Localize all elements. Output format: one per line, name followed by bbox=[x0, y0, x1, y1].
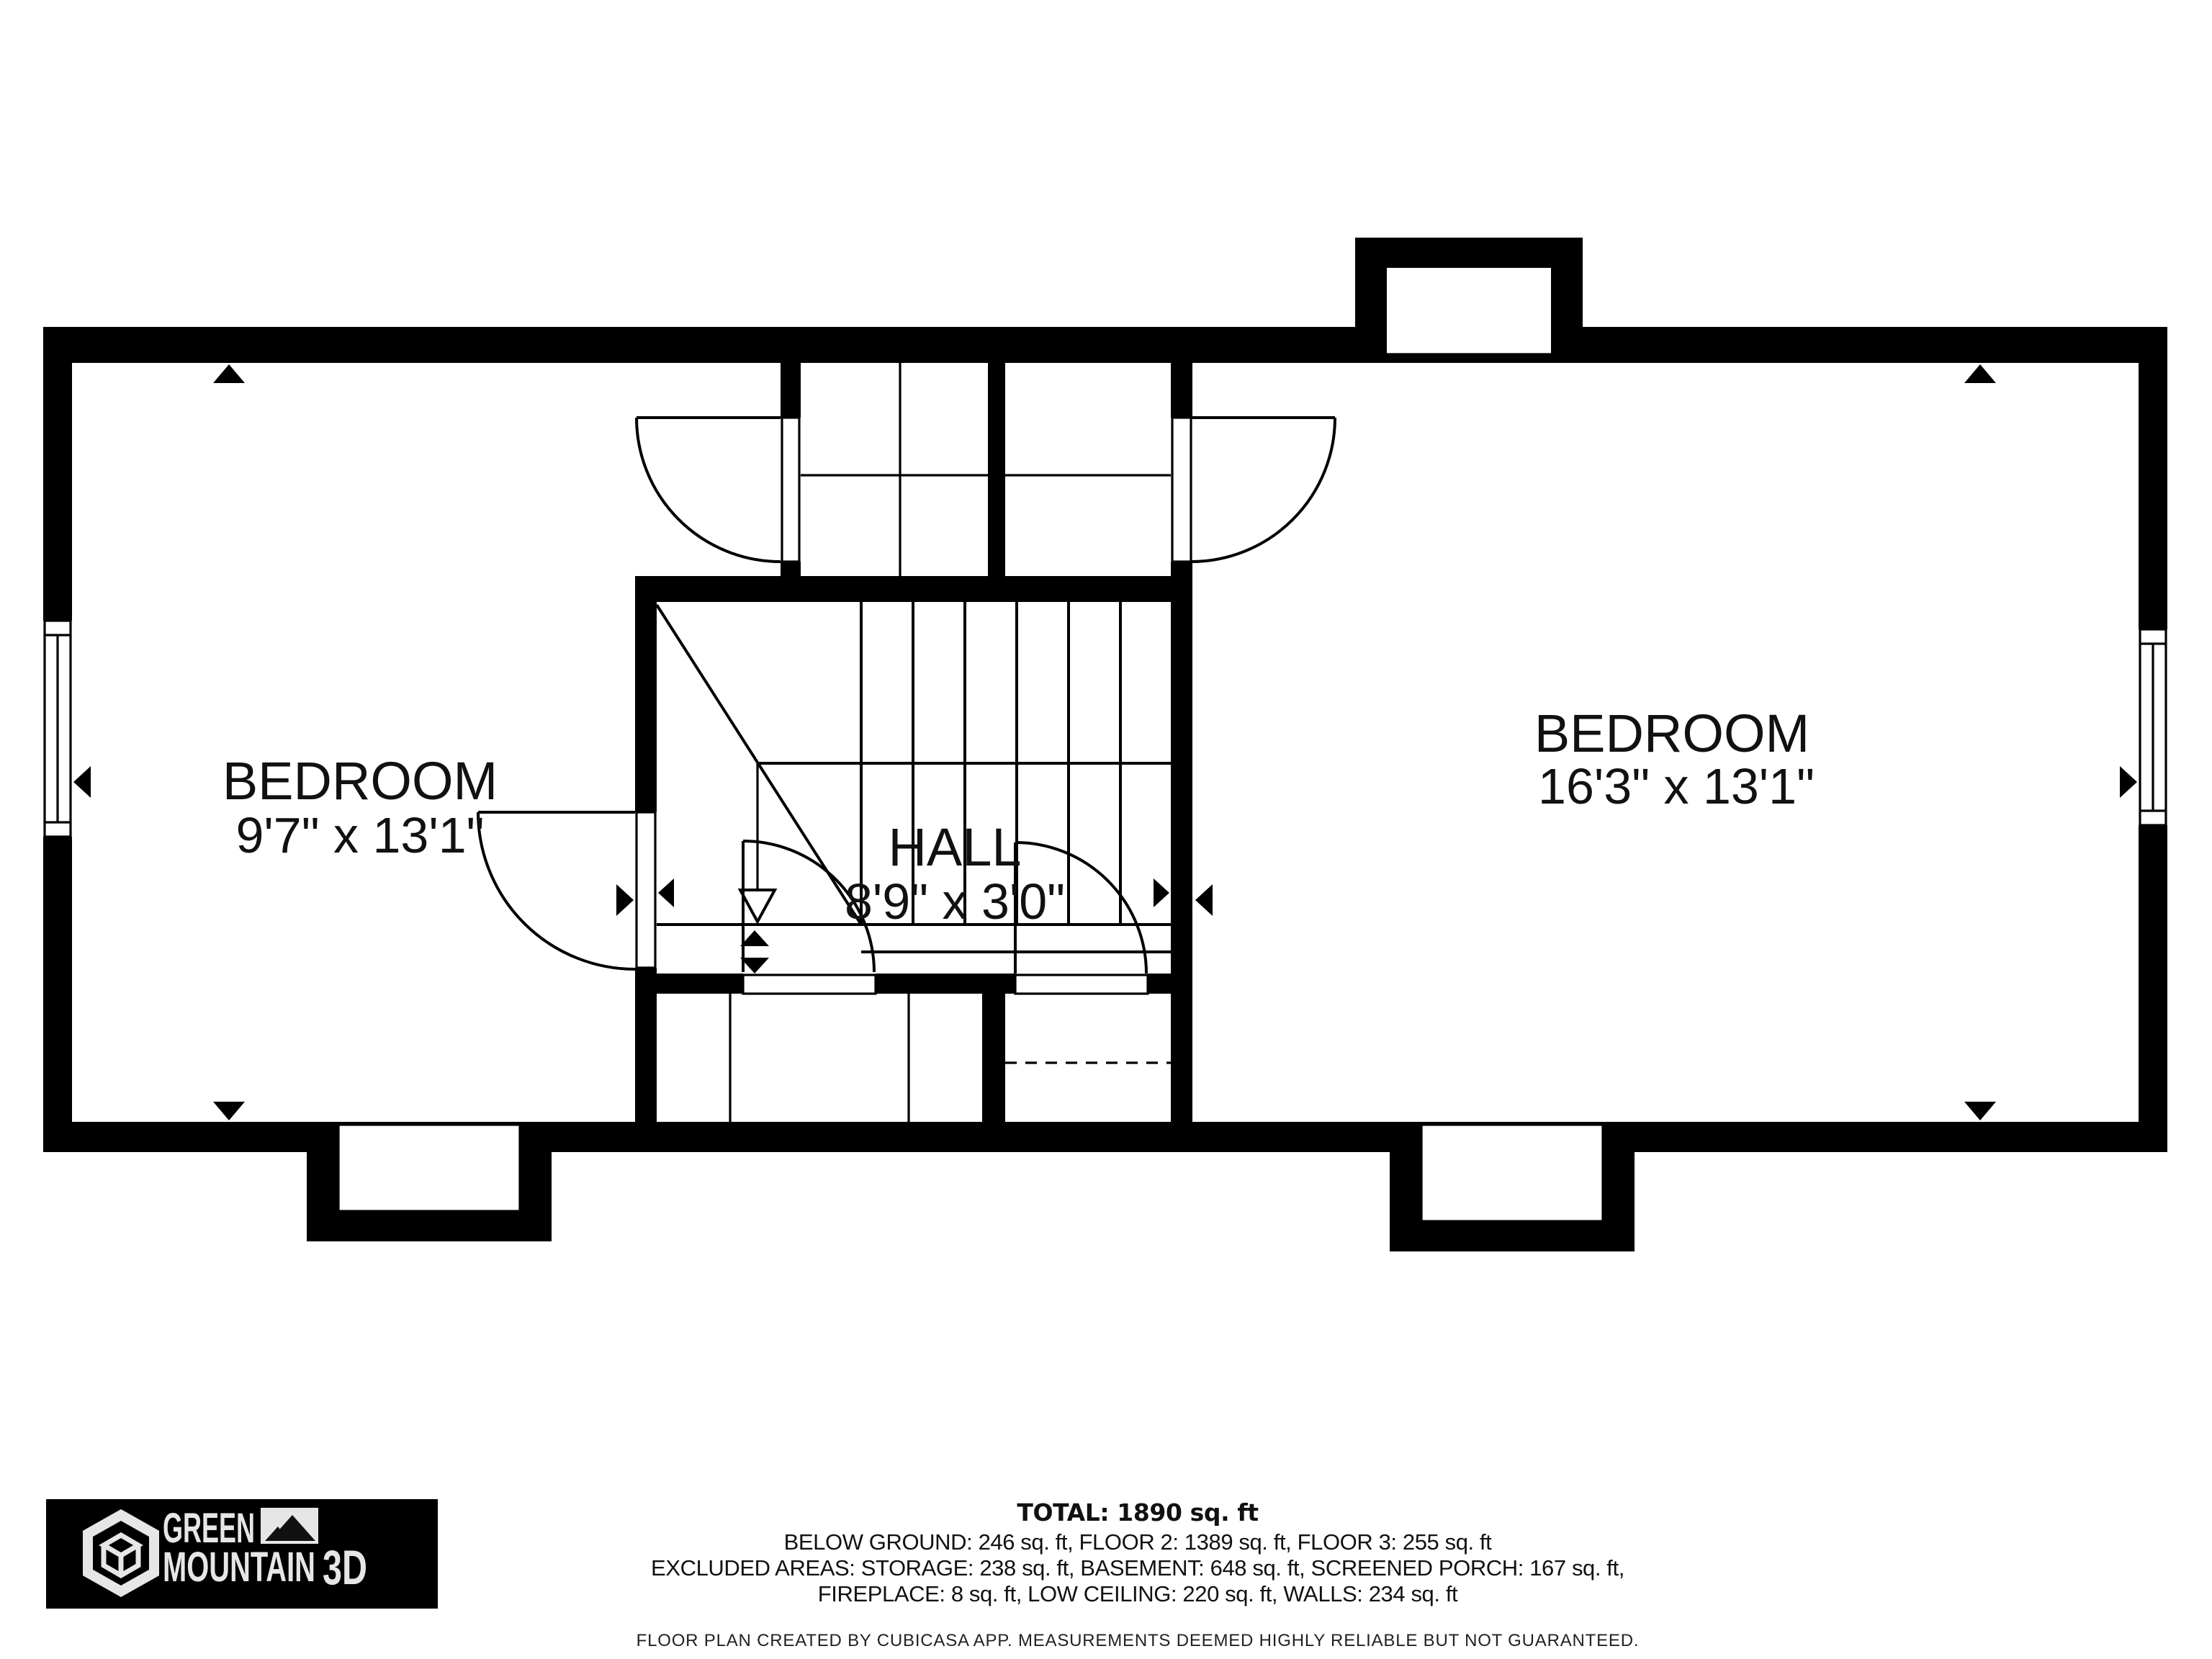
hall-door-right-threshold bbox=[1015, 975, 1148, 994]
logo-word-mountain: MOUNTAIN bbox=[163, 1544, 315, 1591]
hall-wall-left-upper bbox=[635, 602, 657, 812]
hall-wall-right bbox=[1171, 602, 1192, 994]
floor-plan-page: BEDROOM 9'7" x 13'1" BEDROOM 16'3" x 13'… bbox=[0, 0, 2212, 1659]
excluded-areas-text-2: FIREPLACE: 8 sq. ft, LOW CEILING: 220 sq… bbox=[818, 1581, 1458, 1606]
closet-door-right-opening bbox=[1172, 418, 1191, 562]
chimney-bump bbox=[1355, 238, 1583, 363]
closet-wall-a-lower bbox=[781, 562, 801, 576]
floors-area-text: BELOW GROUND: 246 sq. ft, FLOOR 2: 1389 … bbox=[784, 1529, 1493, 1555]
closet-wall-d-upper bbox=[1171, 363, 1192, 418]
total-area-text: TOTAL: 1890 sq. ft bbox=[1017, 1498, 1259, 1527]
window-right bbox=[2139, 629, 2167, 825]
hall-wall-bottom-2 bbox=[876, 974, 1015, 994]
disclaimer-text: FLOOR PLAN CREATED BY CUBICASA APP. MEAS… bbox=[637, 1631, 1640, 1650]
lower-closet-wall-mid bbox=[982, 994, 1005, 1122]
hall-wall-bottom-1 bbox=[635, 974, 743, 994]
closet-door-left-opening bbox=[782, 418, 799, 562]
hall-label: HALL bbox=[888, 817, 1021, 877]
lower-closet-wall-right bbox=[1171, 994, 1192, 1122]
lower-closet-wall-left bbox=[635, 994, 657, 1122]
closet-wall-a-upper bbox=[781, 363, 801, 418]
bedroom-right-label: BEDROOM bbox=[1534, 703, 1809, 763]
hall-wall-bottom-3 bbox=[1148, 974, 1192, 994]
bump-out-bottom-left bbox=[307, 1122, 552, 1241]
bedroom-right-dims: 16'3" x 13'1" bbox=[1538, 758, 1815, 814]
bedroom-left-dims: 9'7" x 13'1" bbox=[236, 807, 485, 863]
logo-word-3d: 3D bbox=[323, 1540, 367, 1595]
window-left bbox=[43, 621, 72, 837]
bump-left-interior bbox=[338, 1125, 520, 1211]
closet-wall-d-lower bbox=[1171, 562, 1192, 576]
stair-wall-top bbox=[635, 576, 1192, 602]
bedroom-left-label: BEDROOM bbox=[222, 751, 498, 811]
bump-right-interior bbox=[1421, 1125, 1603, 1221]
bedroom-left-door-opening bbox=[637, 812, 655, 968]
excluded-areas-text-1: EXCLUDED AREAS: STORAGE: 238 sq. ft, BAS… bbox=[651, 1555, 1624, 1581]
closet-wall-c bbox=[988, 363, 1005, 576]
chimney-interior bbox=[1387, 268, 1551, 354]
logo-mountain-icon bbox=[261, 1508, 318, 1544]
wall-top bbox=[43, 327, 2167, 363]
bump-out-bottom-right bbox=[1390, 1122, 1635, 1251]
hall-dims: 8'9" x 3'0" bbox=[845, 873, 1065, 930]
hall-door-left-threshold bbox=[743, 975, 876, 994]
logo: GREEN MOUNTAIN 3D bbox=[46, 1499, 438, 1609]
